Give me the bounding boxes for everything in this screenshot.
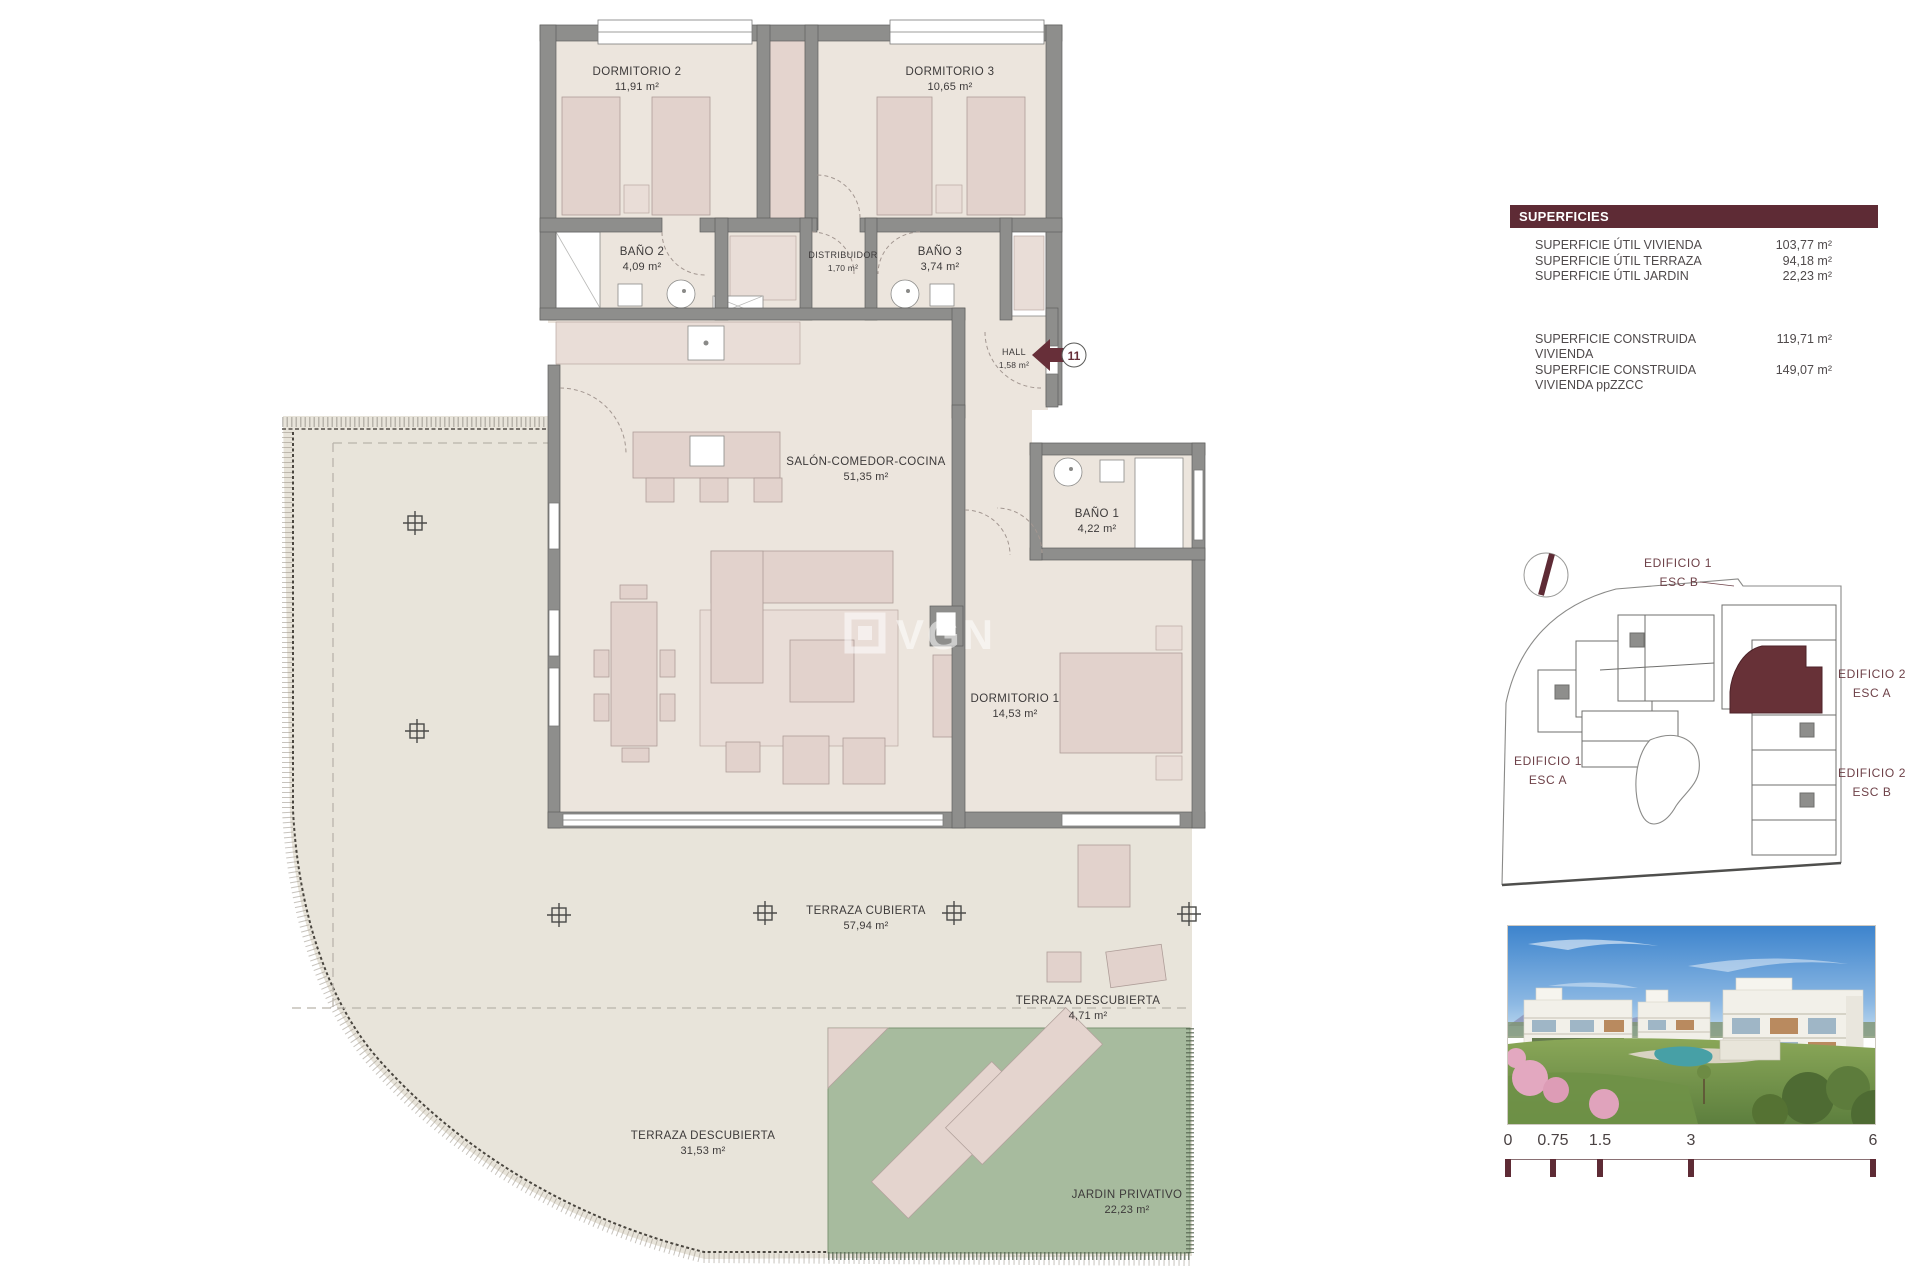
- watermark-text: VGN: [896, 611, 996, 658]
- label-terraza-cubierta: TERRAZA CUBIERTA: [806, 905, 926, 917]
- area-dormitorio-3: 10,65 m²: [927, 81, 972, 93]
- row-value: 22,23 m²: [1752, 269, 1832, 285]
- stool: [700, 478, 728, 502]
- nightstand: [1156, 626, 1182, 650]
- area-hall: 1,58 m²: [999, 360, 1029, 370]
- scale-label-075: 0.75: [1537, 1132, 1568, 1150]
- site-pool: [1636, 735, 1699, 823]
- watermark: VGN: [848, 611, 996, 658]
- label-distribuidor: DISTRIBUIDOR: [808, 250, 877, 260]
- coffee-table: [790, 640, 854, 702]
- scale-tick: [1597, 1159, 1603, 1177]
- chair: [660, 650, 675, 677]
- north-compass-icon: [1524, 553, 1568, 597]
- table-row: SUPERFICIE ÚTIL JARDIN 22,23 m²: [1535, 269, 1832, 285]
- area-bano-2: 4,09 m²: [623, 261, 662, 273]
- site-label-building: EDIFICIO 1: [1514, 754, 1582, 768]
- label-bano-3: BAÑO 3: [918, 245, 963, 258]
- unit-number: 11: [1068, 349, 1081, 363]
- row-label: SUPERFICIE ÚTIL TERRAZA: [1535, 254, 1752, 270]
- armchair: [843, 738, 885, 784]
- sink-drain: [682, 289, 686, 293]
- bed: [967, 97, 1025, 215]
- sink: [667, 280, 695, 308]
- site-label-building: EDIFICIO 1: [1644, 556, 1712, 570]
- row-value: 94,18 m²: [1752, 254, 1832, 270]
- area-dormitorio-2: 11,91 m²: [615, 81, 659, 93]
- sofa-chaise: [711, 551, 763, 683]
- corridor-floor: [960, 405, 1032, 563]
- bed: [877, 97, 932, 215]
- row-label: SUPERFICIE CONSTRUIDA VIVIENDA: [1535, 332, 1752, 363]
- toilet: [1100, 460, 1124, 482]
- bed: [652, 97, 710, 215]
- scale-label-0: 0: [1504, 1132, 1513, 1150]
- closet-strip: [770, 38, 805, 223]
- row-value: 103,77 m²: [1752, 238, 1832, 254]
- label-dormitorio-1: DORMITORIO 1: [971, 693, 1060, 705]
- sink-drain: [1069, 467, 1073, 471]
- stool: [754, 478, 782, 502]
- floorplan-page: { "colors": { "accent_maroon": "#5e2b35"…: [0, 0, 1920, 1280]
- render-illustration: [1508, 926, 1875, 1124]
- terrace-lounger: [1106, 944, 1166, 987]
- garden-lawn: [828, 1028, 1190, 1253]
- chair: [660, 694, 675, 721]
- closet: [1014, 236, 1044, 310]
- superficies-title: SUPERFICIES: [1510, 205, 1878, 228]
- area-terraza-descubierta-1: 4,71 m²: [1069, 1010, 1108, 1022]
- site-building-2: [1722, 605, 1836, 855]
- development-render-photo: [1508, 926, 1875, 1124]
- sink: [891, 280, 919, 308]
- area-bano-3: 3,74 m²: [921, 261, 960, 273]
- scale-label-3: 3: [1687, 1132, 1696, 1150]
- scale-tick: [1870, 1159, 1876, 1177]
- cooktop-dot: [704, 341, 709, 346]
- terrace-table: [1047, 952, 1081, 982]
- dining-table: [611, 602, 657, 746]
- label-dormitorio-2: DORMITORIO 2: [593, 66, 682, 78]
- row-label: SUPERFICIE ÚTIL VIVIENDA: [1535, 238, 1752, 254]
- side-table: [726, 742, 760, 772]
- toilet: [930, 284, 954, 306]
- label-hall: HALL: [1002, 347, 1026, 357]
- scale-bar: 0 0.75 1.5 3 6: [1500, 1132, 1890, 1184]
- bed: [1060, 653, 1182, 753]
- floor-plan: VGN 11 DORMITORIO 2 11,91 m² DORMITORIO …: [0, 0, 1240, 1280]
- toilet: [618, 284, 642, 306]
- stool: [646, 478, 674, 502]
- label-bano-2: BAÑO 2: [620, 245, 665, 258]
- superficies-panel: SUPERFICIES SUPERFICIE ÚTIL VIVIENDA 103…: [1510, 205, 1878, 394]
- area-dormitorio-1: 14,53 m²: [992, 708, 1037, 720]
- label-dormitorio-3: DORMITORIO 3: [906, 66, 995, 78]
- row-value: 149,07 m²: [1752, 363, 1832, 394]
- site-label-stair: ESC B: [1659, 575, 1698, 589]
- nightstand: [1156, 756, 1182, 780]
- table-row: SUPERFICIE CONSTRUIDA VIVIENDA ppZZCC 14…: [1535, 363, 1832, 394]
- area-jardin-privativo: 22,23 m²: [1104, 1204, 1149, 1216]
- terrace-lounger: [1078, 845, 1130, 907]
- kitchen-counter: [556, 322, 800, 364]
- site-plan: EDIFICIO 1 ESC B EDIFICIO 2 ESC A EDIFIC…: [1500, 545, 1920, 955]
- garden-area: [828, 1008, 1192, 1256]
- area-salon: 51,35 m²: [843, 471, 888, 483]
- label-jardin-privativo: JARDIN PRIVATIVO: [1072, 1189, 1183, 1201]
- sink-drain: [906, 289, 910, 293]
- area-bano-1: 4,22 m²: [1078, 523, 1117, 535]
- table-row: SUPERFICIE CONSTRUIDA VIVIENDA 119,71 m²: [1535, 332, 1832, 363]
- site-label-building: EDIFICIO 2: [1838, 667, 1906, 681]
- label-salon: SALÓN-COMEDOR-COCINA: [786, 455, 945, 468]
- scale-tick: [1505, 1159, 1511, 1177]
- nightstand: [624, 185, 649, 213]
- bed: [562, 97, 620, 215]
- label-terraza-descubierta-1: TERRAZA DESCUBIERTA: [1016, 995, 1161, 1007]
- label-bano-1: BAÑO 1: [1075, 507, 1120, 520]
- nightstand: [936, 185, 962, 213]
- scale-label-6: 6: [1869, 1132, 1878, 1150]
- site-label-stair: ESC A: [1529, 773, 1567, 787]
- area-terraza-cubierta: 57,94 m²: [843, 920, 888, 932]
- row-label: SUPERFICIE ÚTIL JARDIN: [1535, 269, 1752, 285]
- sink: [1054, 458, 1082, 486]
- superficies-util-rows: SUPERFICIE ÚTIL VIVIENDA 103,77 m² SUPER…: [1510, 238, 1878, 285]
- armchair: [783, 736, 829, 784]
- scale-label-15: 1.5: [1589, 1132, 1611, 1150]
- site-label-building: EDIFICIO 2: [1838, 766, 1906, 780]
- row-value: 119,71 m²: [1752, 332, 1832, 363]
- island-sink: [690, 436, 724, 466]
- row-label: SUPERFICIE CONSTRUIDA VIVIENDA ppZZCC: [1535, 363, 1752, 394]
- superficies-construida-rows: SUPERFICIE CONSTRUIDA VIVIENDA 119,71 m²…: [1510, 332, 1878, 394]
- scale-tick: [1550, 1159, 1556, 1177]
- area-terraza-descubierta-2: 31,53 m²: [680, 1145, 725, 1157]
- site-label-stair: ESC B: [1852, 785, 1891, 799]
- area-distribuidor: 1,70 m²: [828, 263, 858, 273]
- chair: [594, 694, 609, 721]
- site-label-stair: ESC A: [1853, 686, 1891, 700]
- chair: [594, 650, 609, 677]
- chair: [620, 585, 647, 599]
- label-terraza-descubierta-2: TERRAZA DESCUBIERTA: [631, 1130, 776, 1142]
- table-row: SUPERFICIE ÚTIL VIVIENDA 103,77 m²: [1535, 238, 1832, 254]
- wardrobe: [730, 236, 796, 300]
- scale-tick: [1688, 1159, 1694, 1177]
- shower: [1135, 458, 1183, 550]
- chair: [622, 748, 649, 762]
- table-row: SUPERFICIE ÚTIL TERRAZA 94,18 m²: [1535, 254, 1832, 270]
